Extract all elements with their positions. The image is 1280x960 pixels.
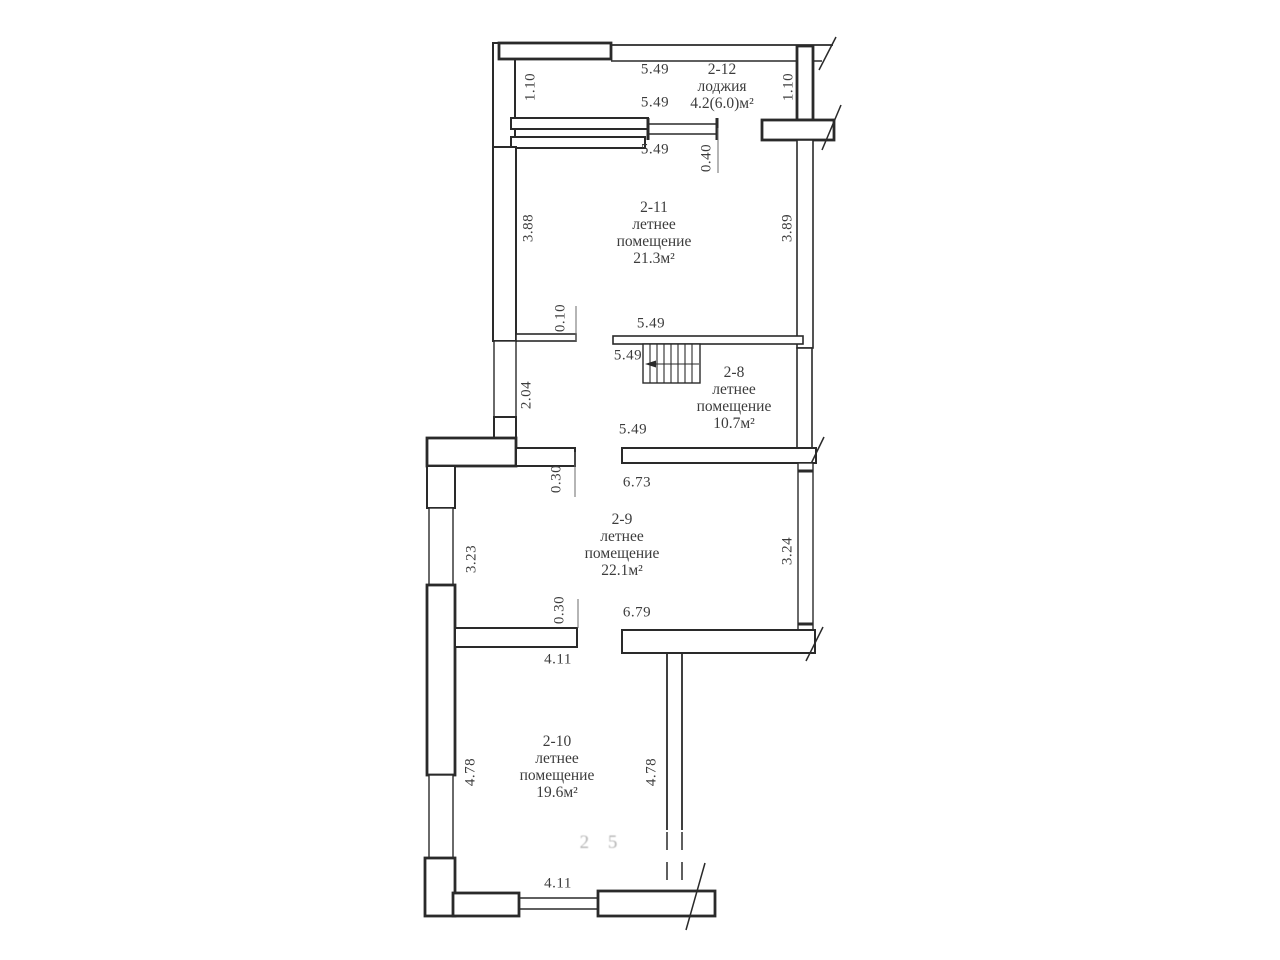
wall-010-thin	[516, 334, 576, 341]
break-line-top-right	[819, 37, 836, 70]
loggia-bottom-wall	[511, 118, 718, 173]
wall-211-left-pier	[493, 147, 516, 341]
room-2-11-walls	[493, 140, 813, 441]
floor-plan-drawing	[0, 0, 1280, 960]
window-478-left	[429, 775, 453, 860]
wall-corner-horizontal	[453, 893, 519, 916]
wall-28-right	[797, 348, 812, 448]
room-2-8-walls	[622, 348, 824, 633]
window-323-left	[429, 508, 453, 585]
wall-stairs-top	[613, 336, 803, 344]
wall-loggia-bottom-upper	[511, 118, 648, 129]
wall-z-step	[427, 438, 516, 466]
wall-right-block	[762, 120, 834, 140]
window-324-right	[798, 463, 813, 633]
wall-211-right	[797, 140, 813, 348]
window-204-left	[494, 341, 516, 417]
wall-loggia-top-block	[499, 43, 611, 59]
wall-corner-vertical	[425, 858, 455, 916]
floor-plan: 2 5 5.491.101.105.495.490.403.883.890.10…	[0, 0, 1280, 960]
wall-29-bottom	[622, 630, 815, 653]
divider-29-210	[455, 599, 823, 661]
wall-loggia-right-pier	[797, 46, 813, 120]
wall-030-stub-bottom	[455, 628, 577, 647]
left-outer-wall-middle	[427, 438, 575, 860]
wall-room211-top	[511, 137, 645, 148]
wall-29-left-upper	[427, 466, 455, 508]
loggia-outer-walls	[493, 37, 841, 150]
room-2-10-walls	[425, 653, 715, 930]
stairs	[613, 336, 803, 383]
wall-28-bottom	[622, 448, 816, 463]
wall-bottom-right-block	[598, 891, 715, 916]
wall-030-stub-top	[516, 448, 575, 466]
wall-left-pier-tall	[427, 585, 455, 775]
